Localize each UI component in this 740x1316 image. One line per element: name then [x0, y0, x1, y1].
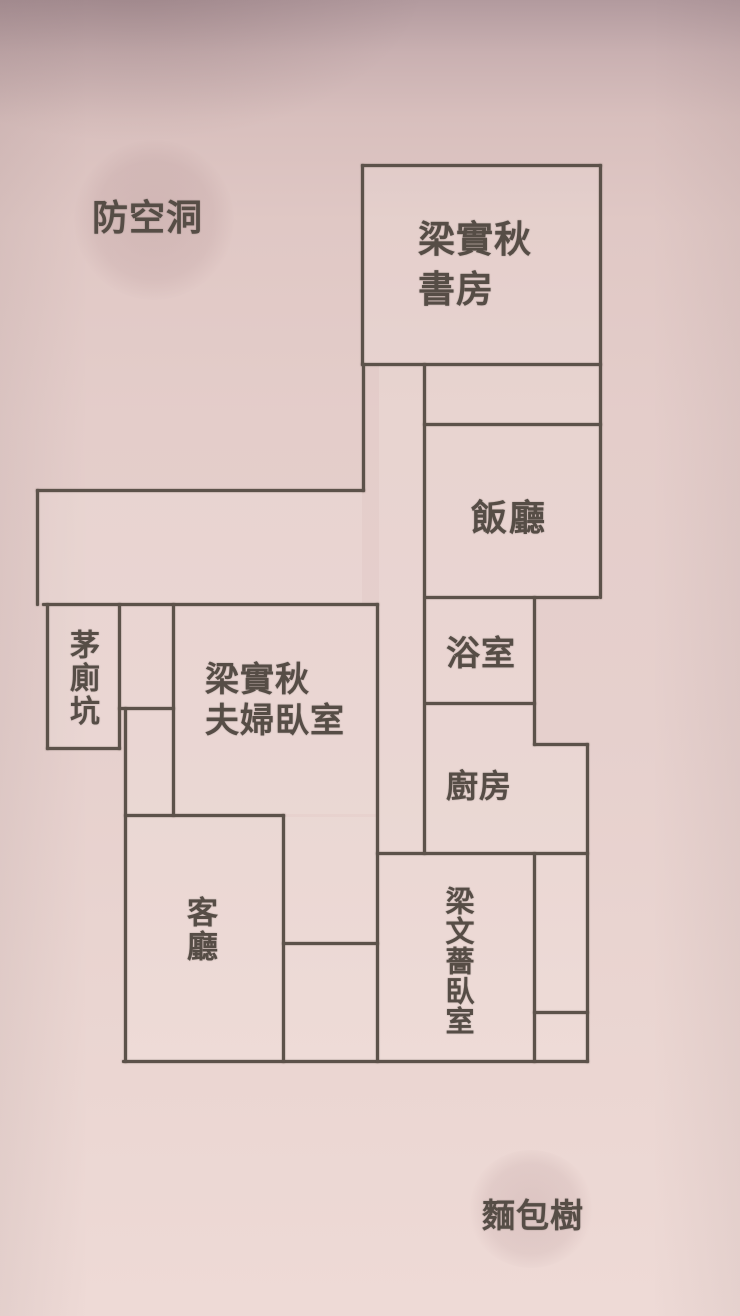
floor-plan-photo: 防空洞 梁實秋 書房 飯廳 浴室 廚房 茅廁坑 梁實秋 夫婦臥室 客廳 梁文薔臥… — [0, 0, 740, 1316]
wall-segment — [586, 743, 589, 1063]
landmark-label-air-raid-shelter: 防空洞 — [92, 194, 203, 243]
wall-segment — [282, 814, 285, 1063]
room-area — [379, 366, 423, 852]
wall-segment — [361, 164, 602, 167]
room-label-study: 梁實秋 書房 — [418, 215, 532, 315]
wall-segment — [533, 852, 536, 1063]
wall-segment — [361, 363, 602, 366]
wall-segment — [376, 603, 379, 1063]
wall-segment — [533, 1011, 589, 1014]
room-area — [285, 817, 376, 942]
room-label-kitchen: 廚房 — [446, 765, 512, 808]
wall-segment — [172, 603, 175, 817]
room-label-daughter-bedroom: 梁文薔臥室 — [442, 886, 471, 1036]
wall-segment — [424, 596, 599, 599]
room-area — [426, 366, 599, 423]
room-area — [285, 945, 376, 1060]
wall-segment — [124, 814, 285, 817]
wall-segment — [425, 702, 536, 705]
wall-segment — [423, 423, 602, 426]
landmark-label-breadfruit-tree: 麵包樹 — [482, 1194, 584, 1239]
room-label-bathroom: 浴室 — [446, 632, 516, 678]
wall-segment — [533, 596, 536, 746]
room-area — [536, 1014, 586, 1060]
wall-segment — [36, 489, 365, 492]
wall-segment — [118, 603, 121, 750]
wall-segment — [46, 603, 49, 750]
wall-segment — [282, 942, 379, 945]
wall-segment — [46, 747, 121, 750]
room-label-master-bedroom: 梁實秋 夫婦臥室 — [205, 660, 345, 742]
wall-segment — [362, 363, 365, 492]
room-area — [533, 746, 586, 852]
wall-segment — [124, 707, 127, 1063]
wall-segment — [42, 603, 379, 606]
wall-segment — [36, 489, 39, 606]
wall-segment — [423, 363, 426, 855]
room-area — [127, 710, 172, 814]
wall-segment — [533, 743, 589, 746]
room-label-dining-room: 飯廳 — [471, 494, 547, 543]
room-area — [536, 855, 586, 1011]
wall-segment — [599, 164, 602, 599]
room-label-living-room: 客廳 — [184, 896, 215, 964]
room-area — [39, 492, 362, 603]
wall-segment — [361, 164, 364, 366]
room-area — [121, 606, 172, 707]
room-label-latrine-pit: 茅廁坑 — [66, 629, 96, 728]
wall-segment — [122, 1060, 589, 1063]
wall-segment — [376, 852, 589, 855]
